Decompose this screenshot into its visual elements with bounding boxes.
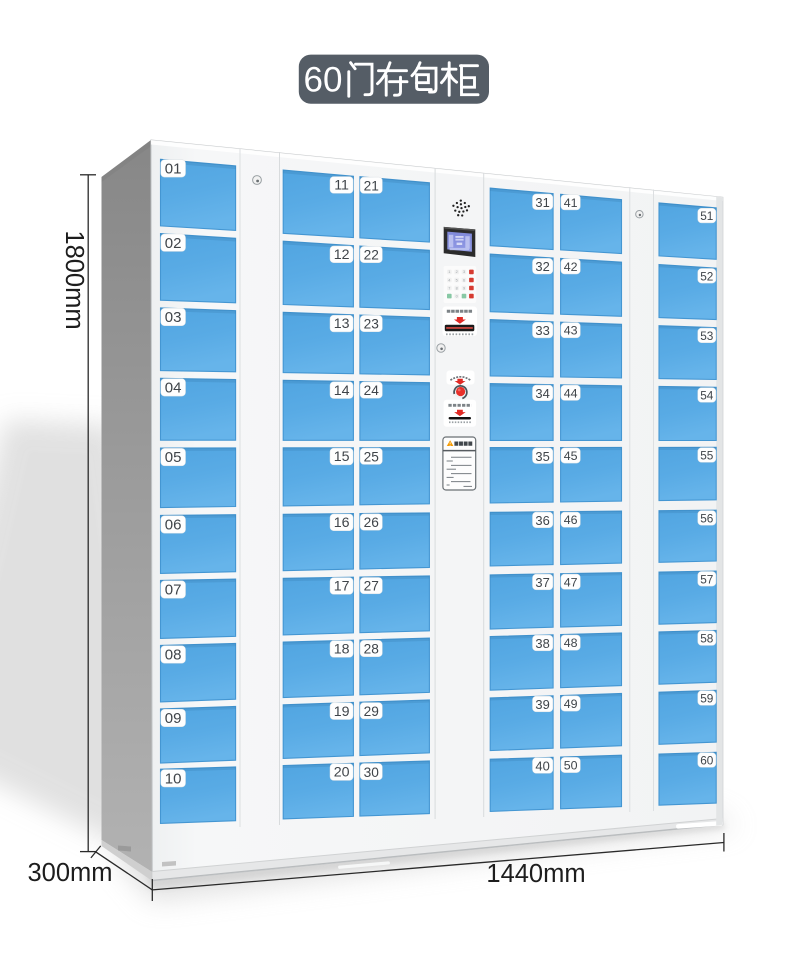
svg-text:40: 40 — [535, 759, 549, 774]
svg-text:46: 46 — [564, 513, 578, 527]
svg-text:1800mm: 1800mm — [60, 230, 88, 329]
svg-text:12: 12 — [334, 247, 350, 263]
svg-text:31: 31 — [535, 195, 549, 210]
svg-text:33: 33 — [535, 323, 549, 338]
svg-text:60: 60 — [304, 61, 343, 100]
svg-text:04: 04 — [165, 380, 182, 397]
svg-text:8: 8 — [456, 286, 458, 290]
svg-text:49: 49 — [564, 697, 578, 711]
svg-text:13: 13 — [334, 316, 350, 332]
svg-text:02: 02 — [165, 235, 182, 252]
svg-text:23: 23 — [364, 317, 380, 332]
svg-text:11: 11 — [334, 178, 349, 194]
svg-text:07: 07 — [165, 582, 182, 599]
svg-text:52: 52 — [700, 269, 713, 283]
svg-text:10: 10 — [165, 770, 182, 787]
svg-text:7: 7 — [448, 286, 450, 290]
svg-text:60: 60 — [700, 754, 714, 768]
svg-text:38: 38 — [535, 636, 549, 651]
svg-text:08: 08 — [165, 647, 182, 664]
svg-text:56: 56 — [700, 512, 714, 526]
svg-text:39: 39 — [535, 697, 549, 712]
svg-text:1440mm: 1440mm — [486, 860, 585, 888]
svg-text:3: 3 — [463, 270, 465, 274]
svg-text:32: 32 — [535, 259, 549, 274]
svg-text:27: 27 — [364, 579, 379, 594]
svg-text:2: 2 — [456, 270, 458, 274]
svg-text:19: 19 — [334, 704, 350, 720]
svg-text:42: 42 — [564, 260, 578, 274]
svg-text:55: 55 — [700, 449, 714, 463]
svg-text:50: 50 — [564, 759, 578, 773]
svg-text:24: 24 — [364, 383, 380, 398]
svg-text:41: 41 — [564, 196, 578, 210]
svg-text:14: 14 — [334, 383, 350, 399]
svg-text:17: 17 — [334, 579, 350, 595]
svg-text:18: 18 — [334, 642, 350, 658]
svg-text:58: 58 — [700, 632, 714, 646]
svg-text:06: 06 — [165, 517, 182, 534]
svg-text:5: 5 — [456, 278, 458, 282]
svg-text:53: 53 — [700, 329, 714, 343]
svg-text:22: 22 — [364, 248, 379, 263]
svg-text:300mm: 300mm — [27, 859, 112, 887]
svg-text:36: 36 — [535, 513, 549, 528]
svg-text:1: 1 — [448, 270, 450, 274]
svg-text:09: 09 — [165, 710, 182, 727]
svg-text:57: 57 — [700, 572, 713, 586]
svg-text:25: 25 — [364, 449, 380, 464]
svg-text:44: 44 — [564, 386, 578, 400]
svg-text:20: 20 — [334, 765, 350, 781]
svg-text:30: 30 — [364, 765, 380, 780]
svg-text:15: 15 — [334, 449, 350, 465]
svg-text:01: 01 — [165, 161, 182, 178]
svg-text:59: 59 — [700, 692, 713, 706]
svg-text:0: 0 — [456, 294, 458, 298]
svg-text:4: 4 — [448, 278, 450, 282]
svg-text:6: 6 — [463, 278, 465, 282]
svg-text:54: 54 — [700, 389, 714, 403]
svg-text:51: 51 — [700, 209, 713, 223]
svg-text:35: 35 — [535, 449, 549, 464]
svg-text:28: 28 — [364, 642, 380, 657]
svg-text:48: 48 — [564, 636, 578, 650]
svg-text:26: 26 — [364, 515, 380, 530]
svg-text:16: 16 — [334, 515, 350, 531]
svg-text:37: 37 — [535, 575, 549, 590]
svg-text:21: 21 — [364, 178, 379, 193]
svg-text:05: 05 — [165, 449, 182, 466]
svg-text:03: 03 — [165, 309, 182, 326]
svg-text:9: 9 — [463, 286, 465, 290]
svg-text:47: 47 — [564, 575, 578, 589]
svg-text:45: 45 — [564, 449, 578, 463]
svg-text:43: 43 — [564, 324, 578, 338]
svg-text:29: 29 — [364, 704, 379, 719]
svg-text:34: 34 — [535, 386, 549, 401]
